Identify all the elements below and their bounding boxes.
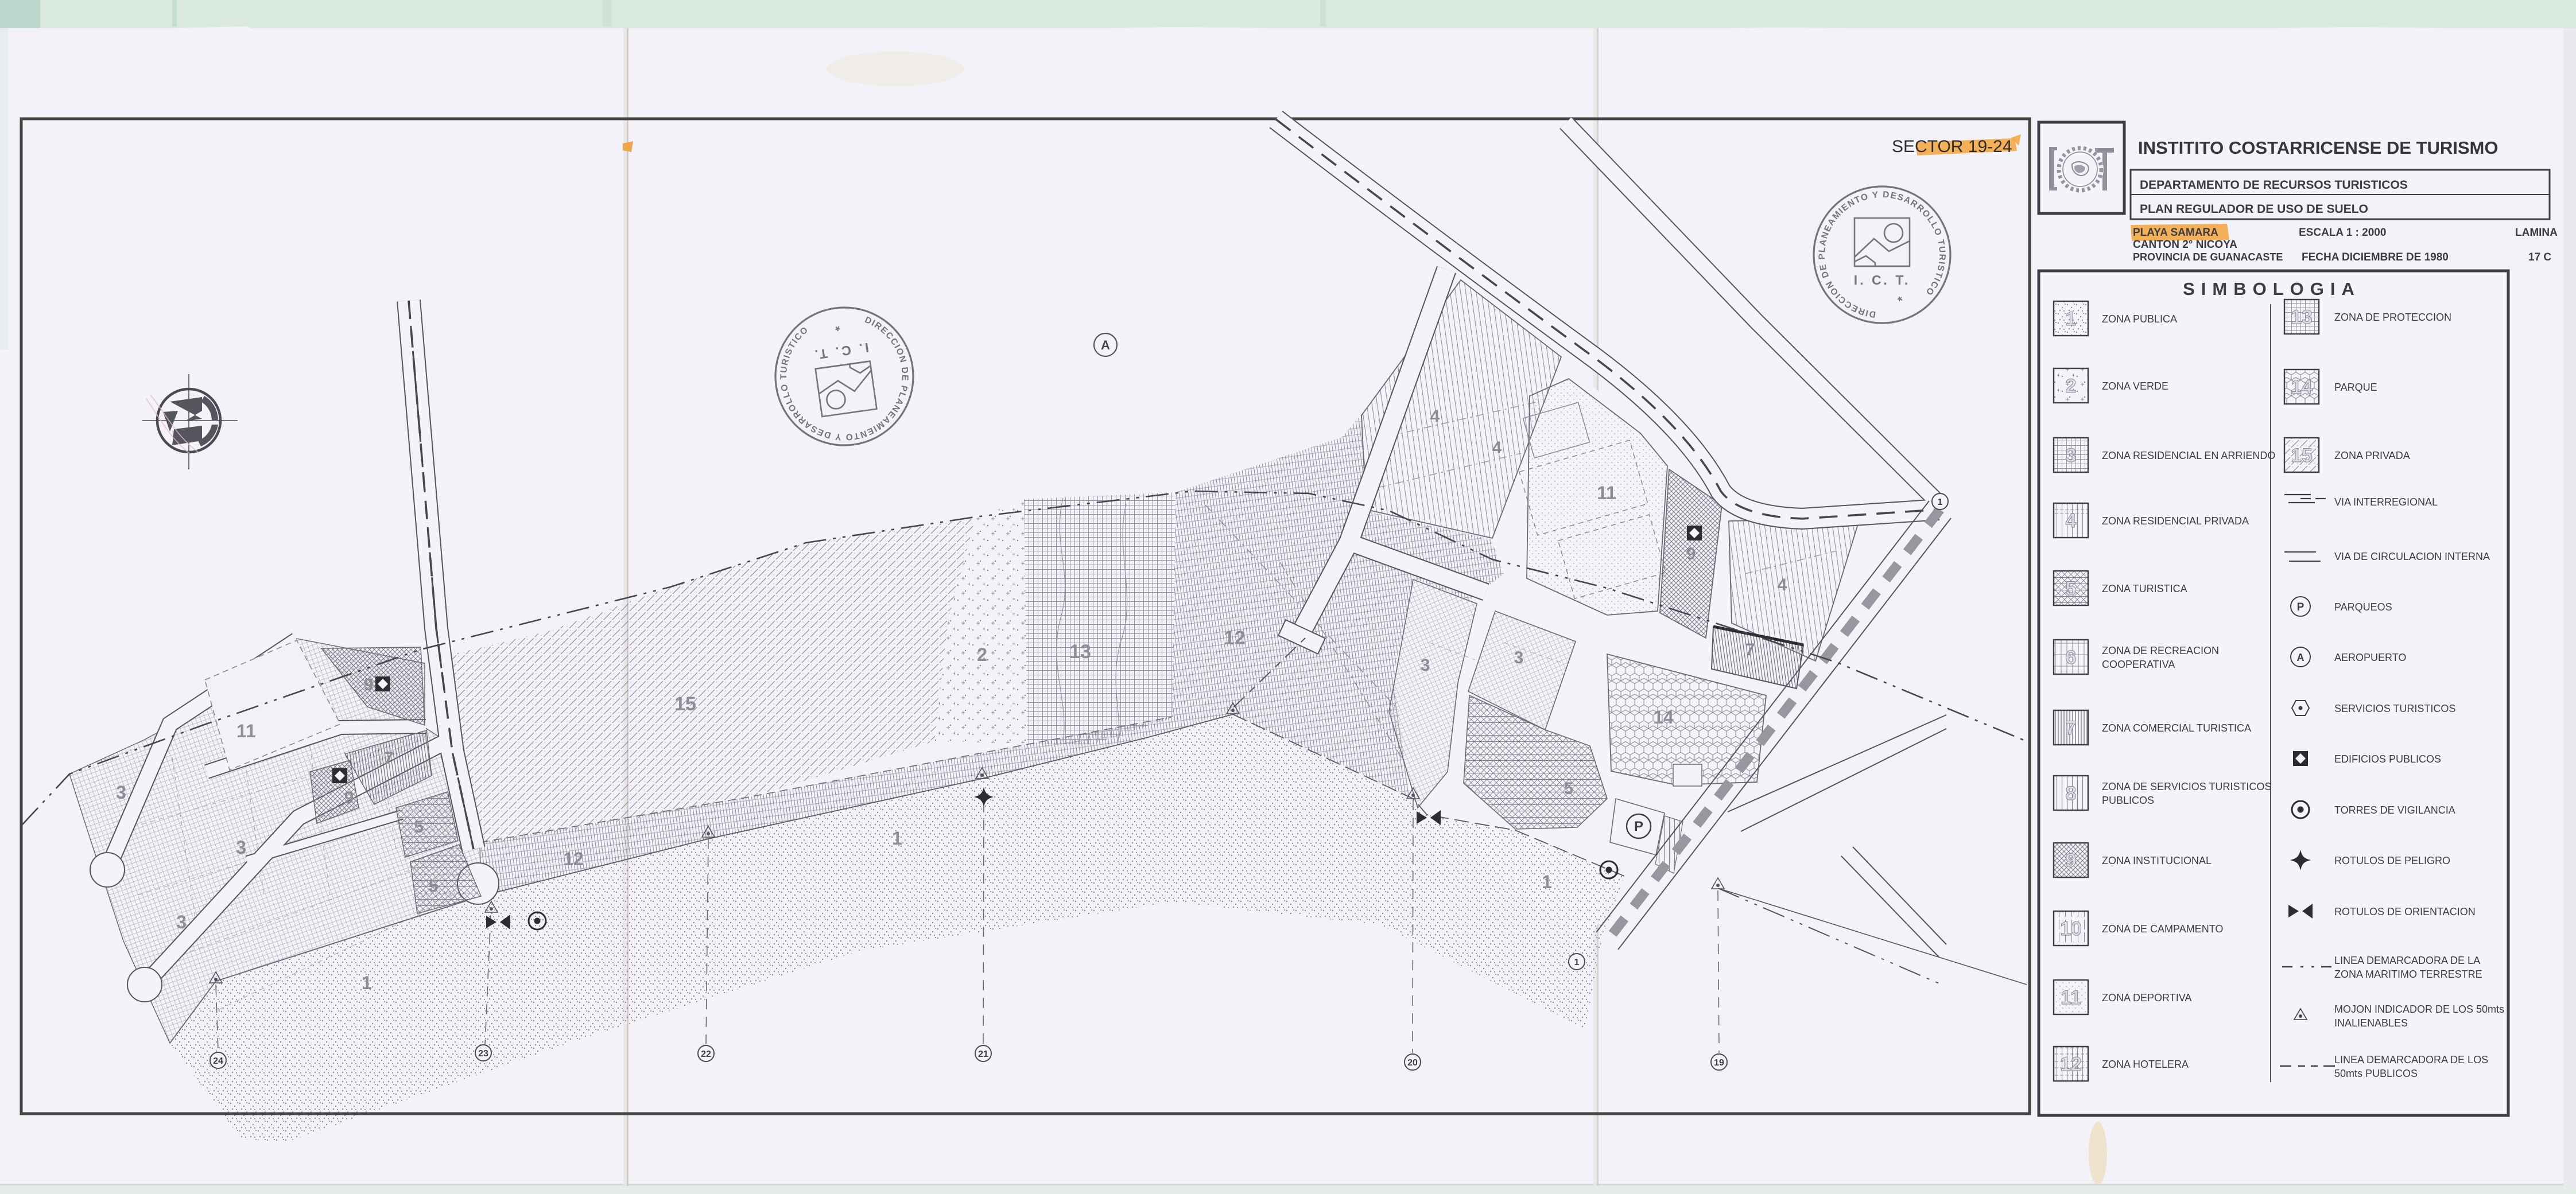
svg-text:P: P — [2297, 601, 2305, 613]
svg-text:MOJON INDICADOR DE LOS 50mts: MOJON INDICADOR DE LOS 50mts — [2334, 1004, 2504, 1015]
svg-text:ZONA INSTITUCIONAL: ZONA INSTITUCIONAL — [2102, 855, 2212, 866]
svg-text:EDIFICIOS PUBLICOS: EDIFICIOS PUBLICOS — [2334, 753, 2441, 765]
svg-text:ROTULOS DE PELIGRO: ROTULOS DE PELIGRO — [2334, 855, 2450, 866]
svg-text:1: 1 — [892, 828, 902, 849]
svg-text:4: 4 — [1778, 575, 1787, 594]
svg-text:ZONA VERDE: ZONA VERDE — [2102, 380, 2168, 392]
svg-text:7: 7 — [2066, 717, 2077, 739]
svg-text:19: 19 — [1714, 1058, 1724, 1068]
svg-text:ZONA PRIVADA: ZONA PRIVADA — [2334, 450, 2410, 461]
svg-text:50mts PUBLICOS: 50mts PUBLICOS — [2334, 1068, 2418, 1079]
svg-text:9: 9 — [1686, 545, 1696, 563]
svg-text:2: 2 — [977, 644, 987, 665]
svg-text:12: 12 — [1224, 627, 1246, 649]
svg-text:12: 12 — [563, 849, 584, 869]
svg-text:3: 3 — [116, 782, 126, 803]
svg-text:1: 1 — [362, 973, 372, 993]
svg-text:1: 1 — [1542, 872, 1552, 892]
svg-text:FECHA DICIEMBRE DE 1980: FECHA DICIEMBRE DE 1980 — [2302, 251, 2449, 263]
svg-text:9: 9 — [344, 788, 354, 807]
svg-text:24: 24 — [213, 1056, 223, 1066]
svg-text:2: 2 — [2066, 375, 2077, 397]
svg-text:6: 6 — [2066, 647, 2077, 668]
svg-text:4: 4 — [1430, 407, 1440, 426]
svg-text:ZONA TURISTICA: ZONA TURISTICA — [2102, 583, 2187, 594]
svg-text:14: 14 — [1653, 707, 1674, 728]
svg-text:14: 14 — [2291, 376, 2313, 398]
svg-text:CANTON 2° NICOYA: CANTON 2° NICOYA — [2133, 239, 2237, 251]
svg-text:15: 15 — [2291, 445, 2313, 466]
svg-text:4: 4 — [1492, 438, 1502, 457]
svg-text:VIA INTERREGIONAL: VIA INTERREGIONAL — [2334, 496, 2438, 508]
svg-text:20: 20 — [1407, 1058, 1418, 1068]
svg-text:I. C. T.: I. C. T. — [1854, 273, 1910, 287]
svg-text:9: 9 — [364, 675, 374, 694]
svg-text:10: 10 — [2060, 918, 2082, 940]
svg-text:ZONA PUBLICA: ZONA PUBLICA — [2102, 313, 2177, 325]
svg-text:DEPARTAMENTO DE RECURSOS TURIS: DEPARTAMENTO DE RECURSOS TURISTICOS — [2140, 178, 2408, 192]
svg-text:VIA DE CIRCULACION INTERNA: VIA DE CIRCULACION INTERNA — [2334, 551, 2490, 562]
svg-text:PROVINCIA DE GUANACASTE: PROVINCIA DE GUANACASTE — [2133, 251, 2283, 263]
svg-text:ZONA RESIDENCIAL EN ARRIENDO: ZONA RESIDENCIAL EN ARRIENDO — [2102, 450, 2275, 461]
svg-text:3: 3 — [176, 912, 187, 932]
svg-text:ZONA DE RECREACION: ZONA DE RECREACION — [2102, 645, 2219, 656]
svg-text:ESCALA 1 : 2000: ESCALA 1 : 2000 — [2299, 227, 2386, 239]
svg-text:A: A — [1101, 338, 1110, 352]
svg-text:4: 4 — [2066, 510, 2077, 532]
svg-text:22: 22 — [701, 1049, 711, 1059]
svg-text:PLAYA SAMARA: PLAYA SAMARA — [2133, 227, 2218, 239]
svg-text:5: 5 — [1564, 779, 1574, 798]
svg-text:1: 1 — [1938, 497, 1943, 507]
svg-text:ZONA HOTELERA: ZONA HOTELERA — [2102, 1059, 2189, 1070]
svg-text:9: 9 — [2066, 850, 2077, 872]
svg-text:LAMINA: LAMINA — [2515, 227, 2558, 239]
svg-text:PLAN REGULADOR DE USO DE SUELO: PLAN REGULADOR DE USO DE SUELO — [2140, 203, 2368, 216]
svg-text:ZONA DE PROTECCION: ZONA DE PROTECCION — [2334, 312, 2451, 323]
svg-text:TORRES DE VIGILANCIA: TORRES DE VIGILANCIA — [2334, 804, 2455, 816]
svg-text:P: P — [1634, 819, 1643, 834]
svg-text:INSTITITO COSTARRICENSE DE TUR: INSTITITO COSTARRICENSE DE TURISMO — [2138, 138, 2499, 158]
svg-text:ZONA MARITIMO TERRESTRE: ZONA MARITIMO TERRESTRE — [2334, 969, 2482, 980]
svg-text:SIMBOLOGIA: SIMBOLOGIA — [2183, 279, 2361, 299]
svg-text:ROTULOS DE ORIENTACION: ROTULOS DE ORIENTACION — [2334, 906, 2476, 917]
svg-text:ZONA DEPORTIVA: ZONA DEPORTIVA — [2102, 992, 2191, 1004]
svg-text:17 C: 17 C — [2528, 251, 2551, 263]
svg-text:AEROPUERTO: AEROPUERTO — [2334, 652, 2406, 663]
svg-text:21: 21 — [978, 1049, 988, 1059]
svg-text:7: 7 — [384, 749, 394, 768]
svg-text:ZONA RESIDENCIAL PRIVADA: ZONA RESIDENCIAL PRIVADA — [2102, 515, 2249, 527]
svg-text:12: 12 — [2060, 1053, 2082, 1075]
svg-text:5: 5 — [429, 877, 439, 896]
svg-text:A: A — [2297, 652, 2305, 663]
svg-text:3: 3 — [1514, 648, 1524, 667]
svg-text:3: 3 — [1421, 656, 1430, 675]
svg-text:5: 5 — [2066, 578, 2077, 600]
svg-text:13: 13 — [2291, 306, 2313, 328]
svg-text:COOPERATIVA: COOPERATIVA — [2102, 659, 2175, 670]
svg-text:7: 7 — [1745, 640, 1755, 659]
svg-text:5: 5 — [414, 818, 424, 837]
svg-text:11: 11 — [236, 721, 256, 741]
svg-text:ZONA DE CAMPAMENTO: ZONA DE CAMPAMENTO — [2102, 923, 2223, 935]
svg-text:ZONA COMERCIAL TURISTICA: ZONA COMERCIAL TURISTICA — [2102, 722, 2251, 734]
svg-text:8: 8 — [2066, 783, 2077, 804]
svg-text:1: 1 — [1574, 958, 1580, 967]
svg-text:23: 23 — [478, 1049, 488, 1059]
svg-text:INALIENABLES: INALIENABLES — [2334, 1017, 2408, 1029]
svg-text:PARQUE: PARQUE — [2334, 382, 2377, 393]
svg-text:LINEA DEMARCADORA DE LOS: LINEA DEMARCADORA DE LOS — [2334, 1054, 2488, 1065]
svg-text:LINEA DEMARCADORA DE LA: LINEA DEMARCADORA DE LA — [2334, 955, 2480, 966]
svg-text:PARQUEOS: PARQUEOS — [2334, 601, 2392, 613]
svg-text:PUBLICOS: PUBLICOS — [2102, 795, 2154, 806]
svg-text:3: 3 — [236, 837, 246, 858]
svg-text:13: 13 — [1069, 641, 1091, 663]
svg-text:11: 11 — [2061, 987, 2081, 1009]
svg-text:15: 15 — [674, 693, 696, 715]
svg-text:1: 1 — [2066, 308, 2077, 330]
svg-text:ZONA DE SERVICIOS TURISTICOS: ZONA DE SERVICIOS TURISTICOS — [2102, 781, 2271, 792]
svg-text:11: 11 — [1597, 483, 1616, 503]
svg-text:SERVICIOS TURISTICOS: SERVICIOS TURISTICOS — [2334, 703, 2455, 714]
svg-text:3: 3 — [2066, 445, 2077, 466]
svg-text:SECTOR 19-24: SECTOR 19-24 — [1892, 137, 2012, 156]
